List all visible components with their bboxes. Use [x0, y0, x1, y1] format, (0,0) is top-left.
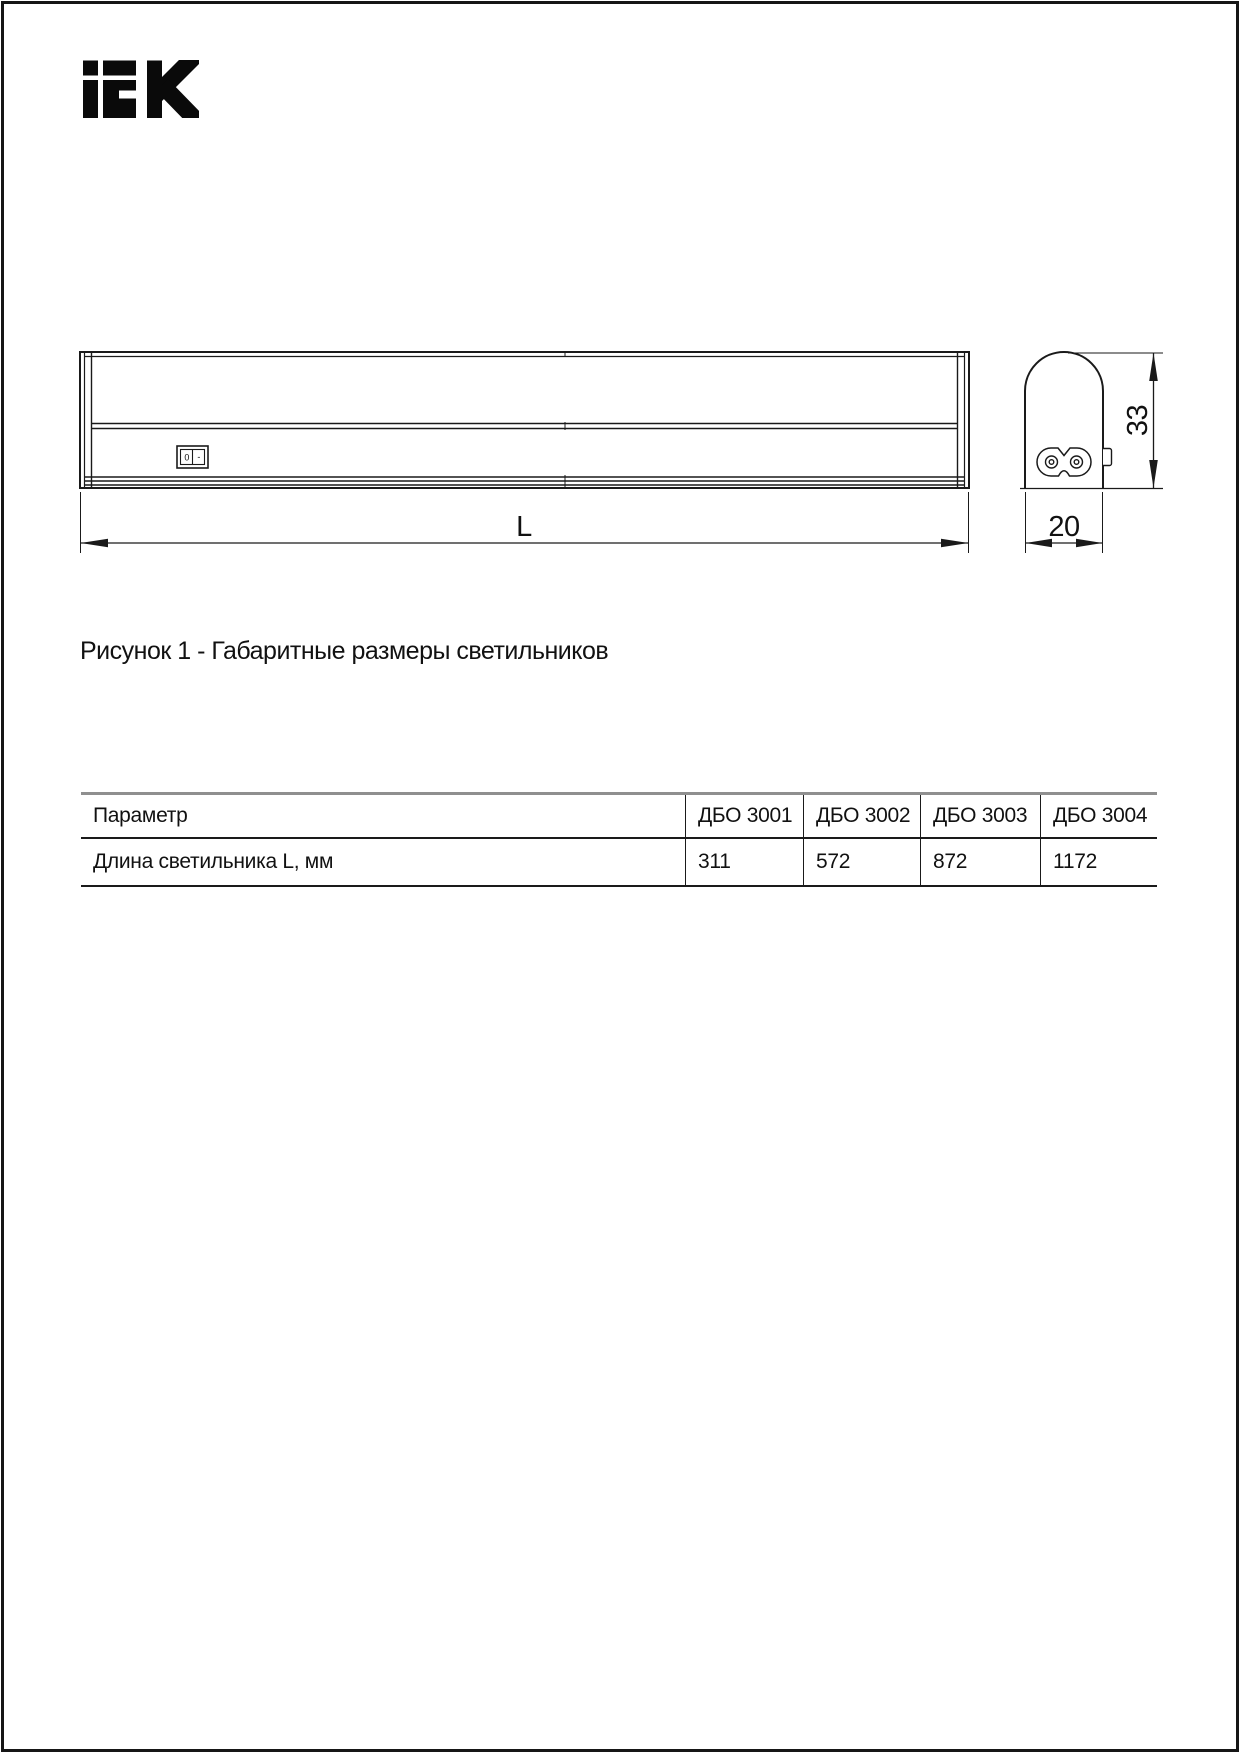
- arrow-right-icon: [941, 539, 969, 548]
- front-view-body: [80, 352, 969, 488]
- dimensions-table: Параметр ДБО 3001 ДБО 3002 ДБО 3003 ДБО …: [81, 792, 1157, 887]
- table-header-row: Параметр ДБО 3001 ДБО 3002 ДБО 3003 ДБО …: [81, 795, 1157, 839]
- column-header-parameter: Параметр: [81, 795, 685, 837]
- arrow-right-icon: [1076, 539, 1103, 548]
- value-cell-dbo3002: 572: [803, 839, 920, 885]
- height-dimension-label: 33: [1122, 405, 1154, 436]
- arrow-down-icon: [1149, 460, 1158, 488]
- value-cell-dbo3001: 311: [685, 839, 803, 885]
- dimensional-drawing: 0 - L: [60, 340, 1180, 565]
- column-header-dbo3002: ДБО 3002: [803, 795, 920, 837]
- switch-off-label: 0: [184, 453, 189, 463]
- column-header-dbo3004: ДБО 3004: [1040, 795, 1157, 837]
- logo-letter-e: [103, 61, 136, 119]
- depth-dimension: 20: [1026, 492, 1103, 553]
- figure-caption: Рисунок 1 - Габаритные размеры светильни…: [80, 637, 608, 666]
- table-row: Длина светильника L, мм 311 572 872 1172: [81, 839, 1157, 887]
- side-latch-tab: [1103, 449, 1112, 466]
- luminaire-front-view: 0 -: [80, 352, 969, 489]
- datasheet-page: 0 - L: [0, 0, 1240, 1753]
- logo-letter-i: [83, 61, 98, 119]
- length-dimension-label: L: [516, 511, 532, 543]
- value-cell-dbo3004: 1172: [1040, 839, 1157, 885]
- column-header-dbo3003: ДБО 3003: [920, 795, 1040, 837]
- arrow-left-icon: [81, 539, 109, 548]
- length-dimension: L: [81, 492, 969, 553]
- logo-letter-k: [147, 60, 197, 118]
- depth-dimension-label: 20: [1048, 511, 1079, 543]
- power-switch: 0 -: [177, 446, 208, 468]
- value-cell-dbo3003: 872: [920, 839, 1040, 885]
- column-header-dbo3001: ДБО 3001: [685, 795, 803, 837]
- parameter-name-cell: Длина светильника L, мм: [81, 839, 685, 885]
- arrow-up-icon: [1149, 353, 1158, 381]
- iek-logo: [83, 60, 199, 118]
